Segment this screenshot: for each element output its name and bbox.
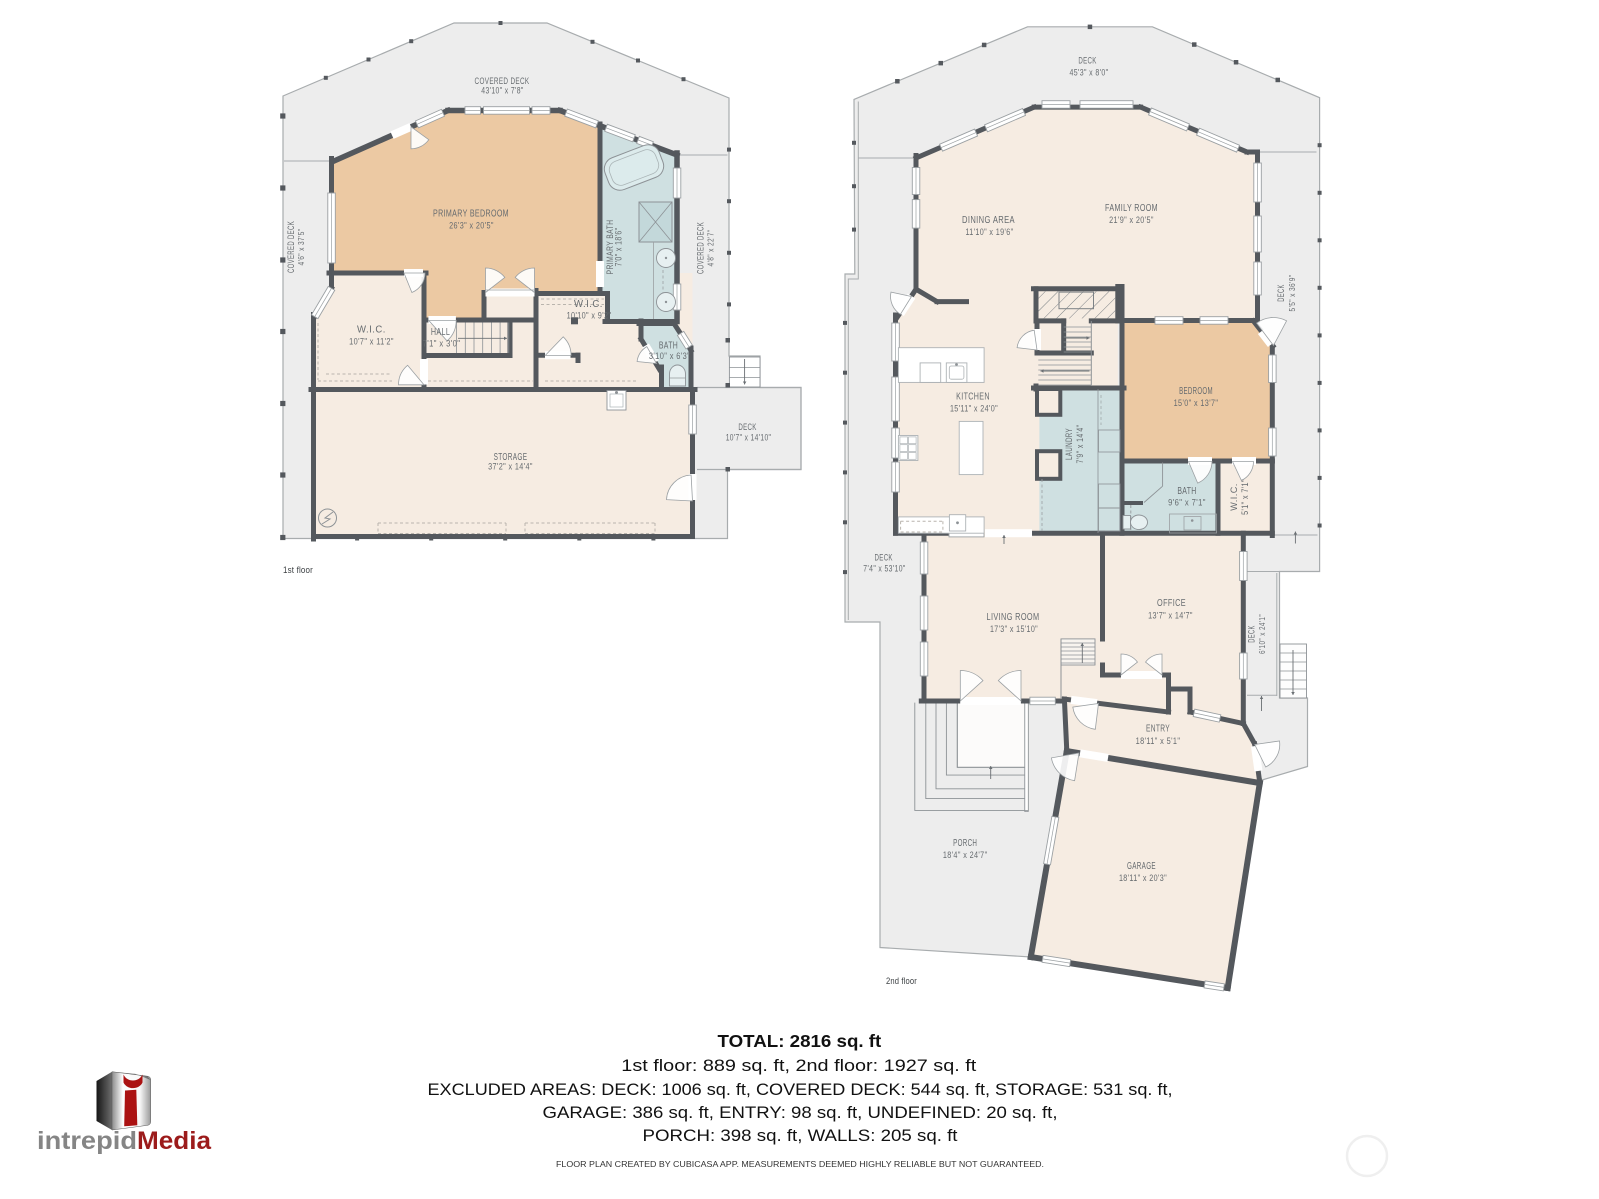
svg-text:OFFICE: OFFICE [1157, 598, 1186, 609]
svg-text:BEDROOM: BEDROOM [1179, 386, 1213, 397]
svg-text:26'3" x 20'5": 26'3" x 20'5" [449, 221, 494, 232]
svg-text:PORCH: 398 sq. ft, WALLS: 205: PORCH: 398 sq. ft, WALLS: 205 sq. ft [643, 1127, 958, 1145]
svg-text:15'11" x 24'0": 15'11" x 24'0" [950, 404, 998, 415]
svg-text:10'10" x 9'2": 10'10" x 9'2" [567, 311, 612, 322]
svg-text:7'1" x 3'0": 7'1" x 3'0" [423, 339, 461, 350]
svg-text:PORCH: PORCH [953, 838, 977, 849]
svg-text:FAMILY ROOM: FAMILY ROOM [1105, 203, 1158, 214]
svg-text:GARAGE: 386 sq. ft, ENTRY: 98: GARAGE: 386 sq. ft, ENTRY: 98 sq. ft, UN… [543, 1104, 1058, 1122]
svg-text:DECK: DECK [1078, 56, 1096, 67]
svg-text:DECK: DECK [875, 553, 893, 564]
svg-text:18'11" x 20'3": 18'11" x 20'3" [1119, 873, 1167, 884]
svg-text:COVERED DECK: COVERED DECK [696, 222, 706, 274]
svg-text:15'0" x 13'7": 15'0" x 13'7" [1174, 398, 1219, 409]
svg-text:PRIMARY BEDROOM: PRIMARY BEDROOM [433, 208, 509, 220]
svg-text:TOTAL: 2816 sq. ft: TOTAL: 2816 sq. ft [718, 1031, 882, 1051]
svg-text:DECK: DECK [738, 422, 756, 433]
svg-text:DECK: DECK [1247, 625, 1257, 642]
svg-text:43'10" x 7'8": 43'10" x 7'8" [481, 86, 523, 96]
svg-text:W.I.C.: W.I.C. [1229, 483, 1240, 511]
svg-text:18'11" x 5'1": 18'11" x 5'1" [1136, 736, 1181, 747]
svg-text:3'10" x 6'3": 3'10" x 6'3" [649, 351, 690, 362]
svg-text:LAUNDRY: LAUNDRY [1064, 428, 1075, 460]
svg-text:37'2" x 14'4": 37'2" x 14'4" [488, 462, 533, 473]
svg-text:intrepid: intrepid [37, 1127, 137, 1155]
svg-text:FLOOR PLAN CREATED BY CUBICASA: FLOOR PLAN CREATED BY CUBICASA APP. MEAS… [556, 1159, 1044, 1169]
svg-text:1st floor: 1st floor [283, 565, 313, 576]
svg-text:ENTRY: ENTRY [1146, 724, 1170, 735]
svg-text:HALL: HALL [431, 327, 450, 338]
svg-text:COVERED DECK: COVERED DECK [286, 221, 296, 273]
svg-text:4'8" x 22'7": 4'8" x 22'7" [706, 230, 716, 267]
svg-text:DECK: DECK [1276, 284, 1286, 301]
svg-text:10'7" x 11'2": 10'7" x 11'2" [349, 337, 394, 348]
svg-text:10'7" x 14'10": 10'7" x 14'10" [726, 433, 772, 443]
svg-text:5'1" x 7'1": 5'1" x 7'1" [1240, 479, 1250, 515]
svg-text:2nd floor: 2nd floor [886, 976, 917, 987]
svg-text:4'6" x 37'5": 4'6" x 37'5" [296, 229, 306, 266]
svg-text:7'9" x 14'4": 7'9" x 14'4" [1075, 424, 1085, 463]
svg-text:Media: Media [137, 1127, 212, 1155]
svg-text:45'3" x 8'0": 45'3" x 8'0" [1069, 68, 1108, 78]
svg-text:18'4" x 24'7": 18'4" x 24'7" [943, 850, 988, 861]
svg-text:GARAGE: GARAGE [1127, 861, 1156, 872]
svg-text:LIVING ROOM: LIVING ROOM [987, 612, 1040, 623]
svg-text:6'10" x 24'1": 6'10" x 24'1" [1257, 614, 1267, 654]
svg-text:13'7" x 14'7": 13'7" x 14'7" [1148, 611, 1193, 622]
svg-text:EXCLUDED AREAS: DECK: 1006 sq.: EXCLUDED AREAS: DECK: 1006 sq. ft, COVER… [428, 1081, 1173, 1099]
svg-text:7'0" x 18'6": 7'0" x 18'6" [614, 227, 624, 266]
svg-text:W.I.C.: W.I.C. [574, 299, 603, 310]
svg-text:7'4" x 53'10": 7'4" x 53'10" [863, 564, 905, 574]
svg-text:17'3" x 15'10": 17'3" x 15'10" [990, 624, 1038, 635]
svg-text:BATH: BATH [1177, 486, 1196, 497]
svg-text:KITCHEN: KITCHEN [956, 392, 990, 403]
svg-text:BATH: BATH [659, 341, 678, 352]
svg-text:1st floor: 889 sq. ft, 2nd flo: 1st floor: 889 sq. ft, 2nd floor: 1927 s… [621, 1057, 976, 1075]
svg-text:21'9" x 20'5": 21'9" x 20'5" [1109, 215, 1154, 226]
svg-text:9'6" x 7'1": 9'6" x 7'1" [1168, 498, 1206, 509]
svg-text:5'5" x 36'9": 5'5" x 36'9" [1287, 275, 1297, 312]
svg-text:11'10" x 19'6": 11'10" x 19'6" [965, 227, 1013, 238]
svg-text:W.I.C.: W.I.C. [357, 325, 386, 336]
svg-text:DINING AREA: DINING AREA [962, 215, 1015, 226]
